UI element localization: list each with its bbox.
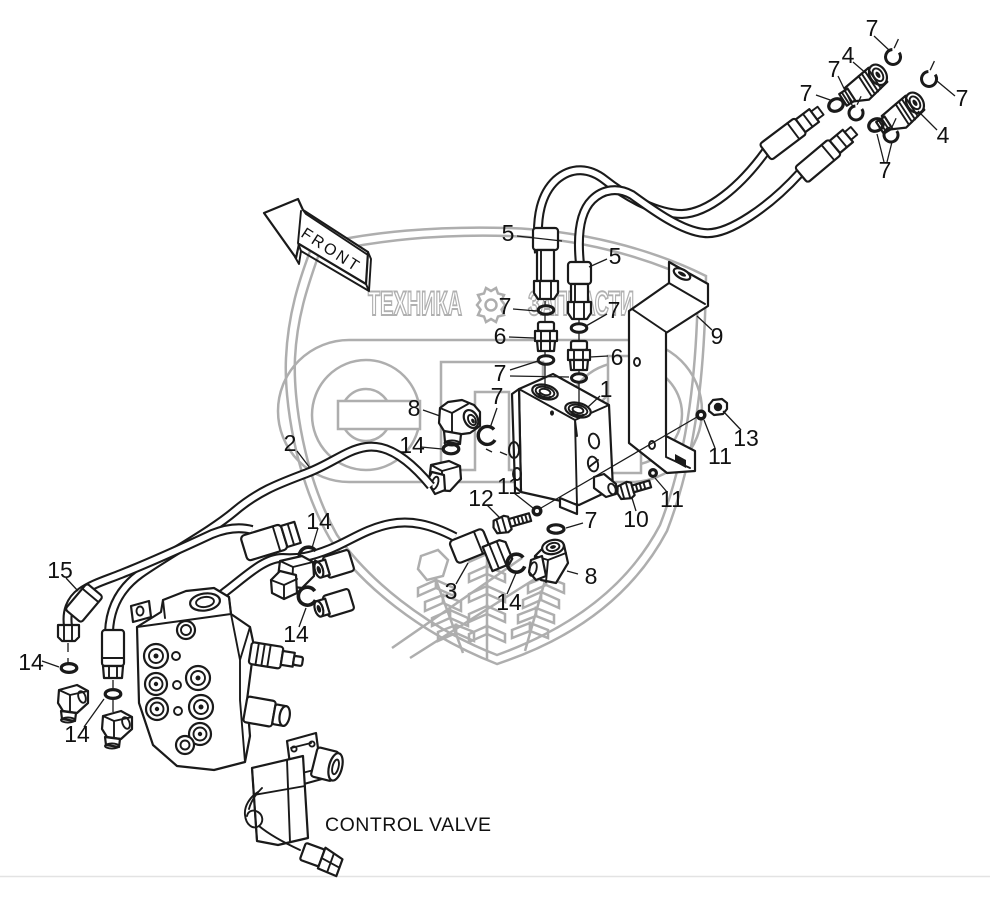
svg-text:5: 5 <box>609 243 622 269</box>
svg-text:11: 11 <box>660 486 684 512</box>
svg-text:4: 4 <box>842 42 855 68</box>
svg-text:7: 7 <box>879 157 892 183</box>
svg-text:7: 7 <box>608 297 621 323</box>
svg-text:CONTROL VALVE: CONTROL VALVE <box>325 814 492 836</box>
svg-text:6: 6 <box>611 344 624 370</box>
svg-text:14: 14 <box>306 508 332 534</box>
svg-text:4: 4 <box>937 122 950 148</box>
svg-text:14: 14 <box>18 649 44 675</box>
svg-text:7: 7 <box>499 293 512 319</box>
svg-text:9: 9 <box>711 323 724 349</box>
svg-text:13: 13 <box>733 425 759 451</box>
svg-text:6: 6 <box>494 323 507 349</box>
svg-text:7: 7 <box>866 15 879 41</box>
svg-text:7: 7 <box>800 80 813 106</box>
svg-text:1: 1 <box>600 376 613 402</box>
svg-text:14: 14 <box>399 432 425 458</box>
svg-text:8: 8 <box>585 563 598 589</box>
svg-text:2: 2 <box>284 430 297 456</box>
svg-text:7: 7 <box>491 383 504 409</box>
svg-text:15: 15 <box>47 557 73 583</box>
svg-text:8: 8 <box>408 395 421 421</box>
svg-text:10: 10 <box>623 506 649 532</box>
svg-text:7: 7 <box>956 85 969 111</box>
svg-text:3: 3 <box>445 578 458 604</box>
svg-text:14: 14 <box>283 621 309 647</box>
svg-text:7: 7 <box>585 507 598 533</box>
svg-text:14: 14 <box>64 721 90 747</box>
svg-text:14: 14 <box>496 589 522 615</box>
svg-text:12: 12 <box>468 485 494 511</box>
svg-text:11: 11 <box>708 443 732 469</box>
svg-text:11: 11 <box>497 473 521 499</box>
svg-text:7: 7 <box>828 56 841 82</box>
svg-text:5: 5 <box>502 220 515 246</box>
svg-text:ТЕХНИКА: ТЕХНИКА <box>368 285 462 323</box>
